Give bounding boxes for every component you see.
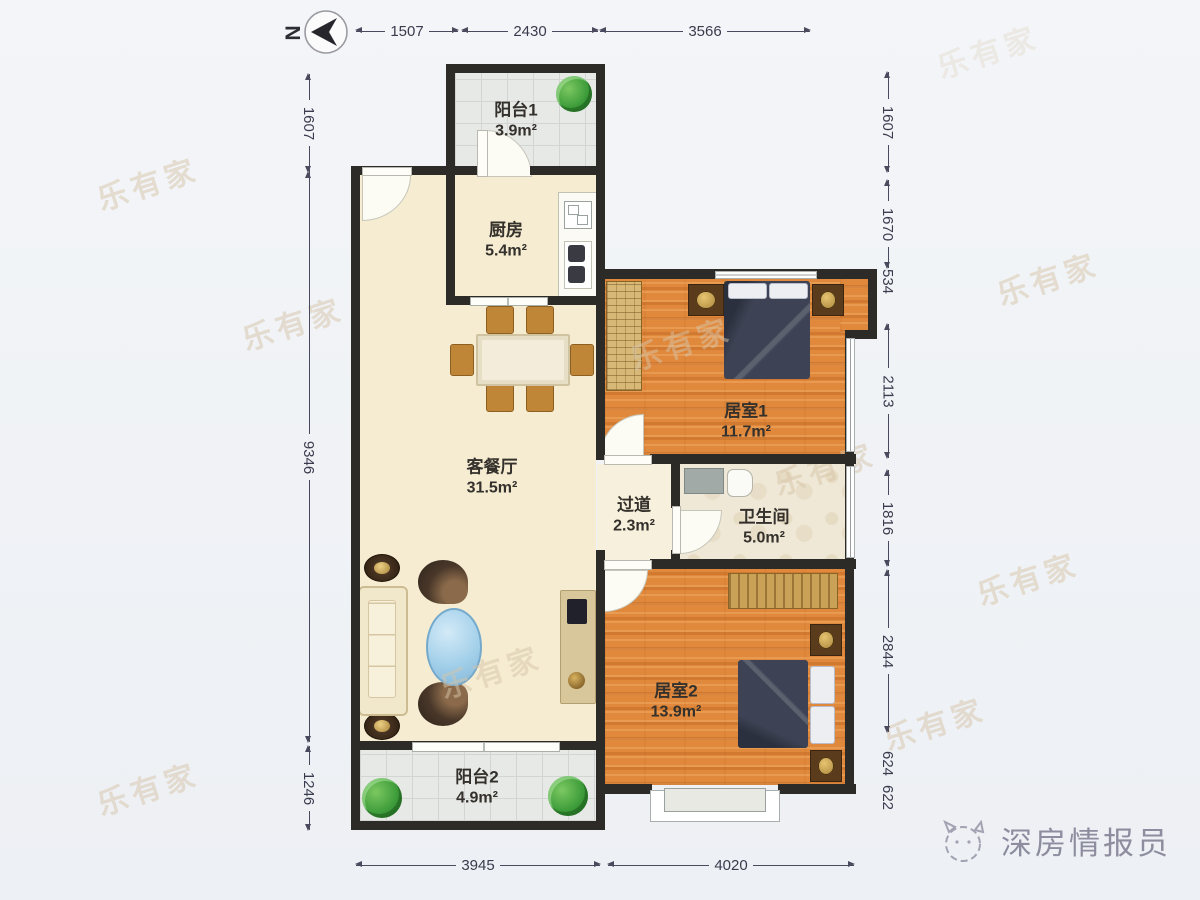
wall (446, 175, 455, 305)
tv-cabinet (560, 590, 596, 704)
dimension-right-5: 1816 (879, 470, 897, 566)
wall (351, 750, 360, 830)
room-label-hallway: 过道 2.3m² (613, 495, 655, 538)
dimension-bottom-1: 3945 (356, 856, 600, 874)
decor-icon (568, 672, 585, 689)
plant-icon (556, 76, 592, 112)
north-arrow-icon (303, 9, 349, 55)
bay-window-sill (664, 788, 766, 812)
dining-chair (526, 306, 554, 334)
wall (596, 784, 652, 794)
wall (650, 454, 856, 464)
wall (446, 64, 455, 175)
wall (650, 559, 856, 569)
dimension-top-1: 1507 (356, 22, 458, 40)
nightstand (812, 284, 844, 316)
wall (596, 305, 605, 460)
door-leaf (604, 560, 652, 570)
watermark: 乐有家 (971, 540, 1084, 614)
lamp-icon (374, 562, 390, 574)
side-table (364, 712, 400, 740)
dimension-right-7: 624 (877, 752, 899, 774)
clock-icon (818, 631, 835, 649)
pillow (810, 706, 835, 744)
dimension-value: 3566 (683, 24, 726, 39)
dimension-value: 1246 (302, 771, 317, 804)
stove-icon (564, 241, 592, 289)
kitchen-counter (558, 192, 598, 298)
brand-logo-icon (933, 812, 991, 868)
dining-chair (486, 384, 514, 412)
room-name: 厨房 (485, 220, 527, 242)
room-name: 居室1 (721, 401, 771, 423)
wall (868, 269, 877, 339)
north-label: N (280, 25, 304, 40)
dimension-value: 1607 (302, 106, 317, 139)
dimension-right-6: 2844 (879, 570, 897, 732)
room-label-bedroom2: 居室2 13.9m² (651, 681, 702, 724)
wall (455, 166, 478, 175)
watermark: 乐有家 (236, 285, 349, 359)
clock-icon (818, 757, 835, 775)
room-area: 2.3m² (613, 517, 655, 538)
watermark: 乐有家 (991, 240, 1104, 314)
dining-chair (450, 344, 474, 376)
nightstand (810, 750, 842, 782)
room-area: 31.5m² (467, 479, 518, 500)
room-label-bedroom1: 居室1 11.7m² (721, 401, 771, 444)
dimension-value: 4020 (709, 858, 752, 873)
room-area: 3.9m² (494, 122, 537, 143)
kitchen-pass-door (470, 297, 548, 306)
dimension-value: 1507 (385, 24, 428, 39)
window (846, 466, 855, 558)
room-label-balcony1: 阳台1 3.9m² (494, 100, 537, 143)
dimension-value: 624 (881, 750, 896, 775)
lamp-icon (374, 720, 390, 732)
room-name: 居室2 (651, 681, 702, 703)
wall (778, 784, 856, 794)
watermark: 乐有家 (931, 13, 1044, 87)
dimension-right-2: 1670 (879, 180, 897, 268)
plant-icon (548, 776, 588, 816)
sofa-cushions (368, 600, 396, 698)
dimension-left-3: 1246 (300, 746, 318, 830)
burner-icon (568, 266, 585, 283)
pillow (728, 283, 767, 299)
door-leaf (477, 130, 488, 177)
sofa (358, 586, 408, 716)
dimension-right-1: 1607 (879, 72, 897, 172)
bed (738, 660, 808, 748)
room-name: 阳台2 (455, 767, 498, 789)
bathroom-sink (684, 468, 724, 494)
burner-icon (568, 245, 585, 262)
pillow (769, 283, 808, 299)
dimension-value: 534 (881, 268, 896, 293)
dimension-value: 2430 (508, 24, 551, 39)
clock-icon (820, 291, 837, 309)
dimension-right-8: 622 (877, 786, 899, 808)
dimension-value: 2113 (881, 375, 896, 407)
door-leaf (604, 455, 652, 465)
watermark: 乐有家 (91, 145, 204, 219)
dimension-top-2: 2430 (462, 22, 598, 40)
wardrobe (728, 573, 838, 609)
dimension-right-3: 534 (877, 270, 899, 292)
room-area: 5.0m² (739, 529, 790, 550)
side-table (364, 554, 400, 582)
dimension-value: 1816 (881, 501, 896, 534)
dimension-left-1: 1607 (300, 74, 318, 172)
room-label-kitchen: 厨房 5.4m² (485, 220, 527, 263)
bed (724, 281, 810, 379)
dimension-left-2: 9346 (300, 172, 318, 742)
clock-icon (696, 291, 715, 309)
room-name: 卫生间 (739, 507, 790, 529)
floor-bedroom1-notch (840, 279, 869, 333)
plant-icon (362, 778, 402, 818)
wall (351, 166, 360, 750)
dimension-bottom-2: 4020 (608, 856, 854, 874)
nightstand (810, 624, 842, 656)
room-name: 客餐厅 (467, 457, 518, 479)
room-area: 13.9m² (651, 703, 702, 724)
dimension-value: 1607 (881, 105, 896, 138)
dimension-top-3: 3566 (600, 22, 810, 40)
wall (671, 458, 680, 508)
room-area: 11.7m² (721, 423, 771, 444)
wall (530, 166, 605, 175)
door-leaf (362, 167, 412, 176)
door-leaf (672, 506, 681, 554)
tv-icon (567, 599, 587, 624)
dining-chair (526, 384, 554, 412)
room-label-livingroom: 客餐厅 31.5m² (467, 457, 518, 500)
room-label-balcony2: 阳台2 4.9m² (455, 767, 498, 810)
brand-name: 深房情报员 (1001, 818, 1171, 863)
room-area: 4.9m² (455, 789, 498, 810)
armchair (418, 560, 468, 604)
floorplan-canvas: 乐有家 乐有家 乐有家 乐有家 乐有家 乐有家 乐有家 乐有家 乐有家 乐有家 … (0, 0, 1200, 900)
wall (446, 64, 605, 73)
room-name: 阳台1 (494, 100, 537, 122)
room-area: 5.4m² (485, 242, 527, 263)
dining-table (476, 334, 570, 386)
wall (351, 821, 605, 830)
dining-chair (486, 306, 514, 334)
room-label-bathroom: 卫生间 5.0m² (739, 507, 790, 550)
toilet (727, 469, 753, 497)
dimension-value: 622 (881, 784, 896, 809)
dimension-value: 9346 (302, 440, 317, 473)
dimension-value: 3945 (456, 858, 499, 873)
wall (845, 559, 854, 794)
dimension-value: 1670 (881, 207, 896, 240)
room-name: 过道 (613, 495, 655, 517)
balcony-sliding-door (412, 742, 560, 752)
pillow (810, 666, 835, 704)
dimension-right-4: 2113 (879, 324, 897, 458)
dining-chair (570, 344, 594, 376)
window (846, 338, 855, 452)
dimension-value: 2844 (881, 634, 896, 667)
wall (596, 550, 605, 794)
brand-signature: 深房情报员 (933, 812, 1171, 868)
kitchen-sink-icon (564, 201, 592, 229)
window (715, 271, 817, 279)
watermark: 乐有家 (91, 750, 204, 824)
